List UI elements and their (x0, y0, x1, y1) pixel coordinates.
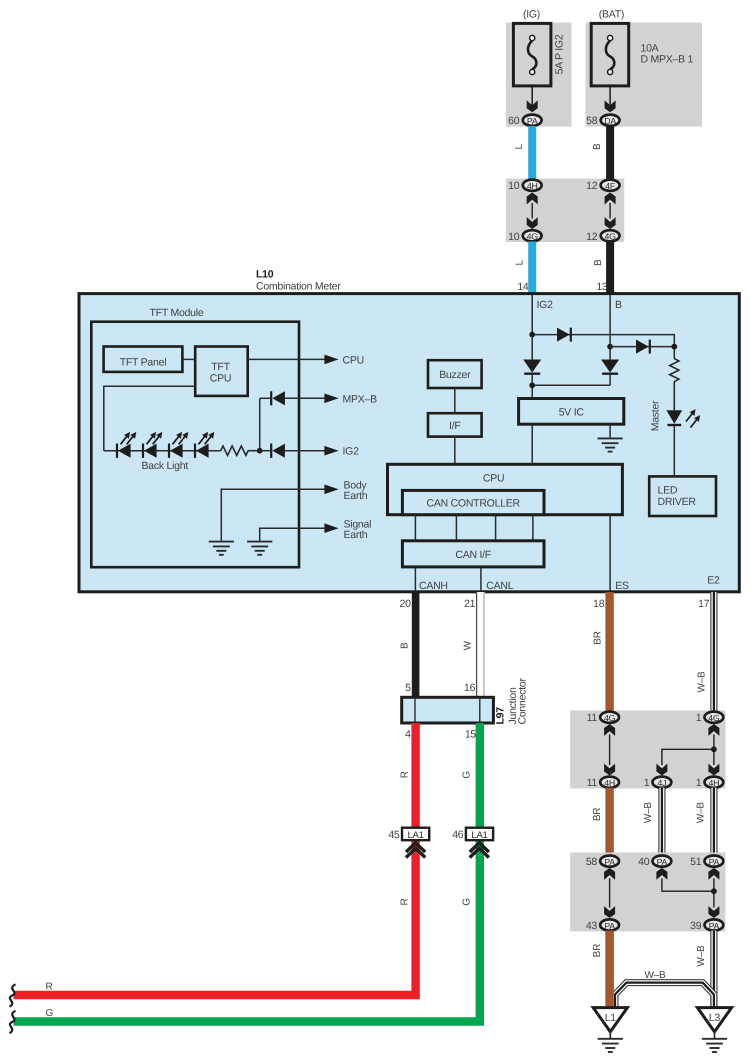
svg-text:4J: 4J (658, 778, 667, 788)
svg-text:B: B (592, 143, 603, 150)
svg-text:CPU: CPU (343, 355, 364, 367)
svg-text:CANL: CANL (486, 580, 513, 592)
svg-text:L: L (514, 143, 525, 149)
svg-text:46: 46 (452, 829, 464, 841)
svg-text:12: 12 (586, 231, 598, 243)
svg-text:TFT: TFT (211, 361, 230, 373)
svg-text:BR: BR (592, 808, 603, 821)
svg-text:4: 4 (405, 728, 411, 740)
svg-text:16: 16 (464, 682, 476, 694)
svg-text:G: G (46, 1008, 54, 1019)
svg-text:IG2: IG2 (537, 299, 554, 311)
svg-text:Connector: Connector (517, 678, 529, 725)
svg-text:W–B: W–B (643, 802, 654, 824)
svg-text:43: 43 (586, 920, 598, 932)
svg-text:10: 10 (508, 231, 520, 243)
svg-text:14: 14 (517, 281, 529, 293)
svg-text:11: 11 (587, 712, 598, 724)
svg-text:Buzzer: Buzzer (439, 369, 471, 381)
svg-text:60: 60 (508, 115, 520, 127)
svg-text:1: 1 (644, 777, 650, 789)
svg-text:TFT Module: TFT Module (150, 307, 204, 319)
svg-text:TFT Panel: TFT Panel (120, 357, 167, 369)
svg-text:21: 21 (464, 598, 476, 610)
svg-text:CAN CONTROLLER: CAN CONTROLLER (427, 498, 521, 510)
svg-text:B: B (593, 259, 604, 266)
svg-text:4H: 4H (709, 778, 720, 788)
svg-text:CPU: CPU (210, 373, 231, 385)
svg-text:L97: L97 (495, 707, 507, 725)
svg-text:Earth: Earth (344, 490, 368, 502)
svg-text:R: R (400, 771, 411, 778)
svg-text:39: 39 (690, 920, 702, 932)
svg-text:4H: 4H (604, 778, 615, 788)
svg-text:W–B: W–B (695, 802, 706, 824)
svg-text:40: 40 (638, 856, 650, 868)
svg-text:CPU: CPU (483, 473, 504, 485)
svg-text:PA: PA (709, 857, 720, 867)
svg-text:Back Light: Back Light (142, 460, 189, 472)
svg-text:51: 51 (690, 856, 702, 868)
svg-text:58: 58 (586, 856, 598, 868)
svg-text:4G: 4G (708, 713, 720, 723)
svg-text:13: 13 (596, 281, 608, 293)
svg-text:DRIVER: DRIVER (658, 496, 697, 508)
svg-text:D MPX–B 1: D MPX–B 1 (641, 54, 694, 66)
svg-text:DA: DA (604, 116, 616, 126)
svg-text:20: 20 (400, 598, 412, 610)
svg-text:4F: 4F (605, 181, 616, 191)
svg-text:LA1: LA1 (471, 830, 487, 841)
svg-text:LED: LED (658, 485, 678, 497)
svg-text:(BAT): (BAT) (599, 9, 624, 21)
svg-text:G: G (462, 771, 473, 779)
svg-text:L1: L1 (605, 1012, 617, 1024)
svg-text:CANH: CANH (419, 580, 448, 592)
svg-text:BR: BR (592, 944, 603, 957)
svg-text:4H: 4H (527, 181, 538, 191)
svg-text:W–B: W–B (645, 970, 667, 981)
svg-text:LA1: LA1 (408, 830, 424, 841)
svg-text:B: B (615, 299, 622, 311)
svg-text:4G: 4G (604, 713, 616, 723)
svg-text:MPX–B: MPX–B (343, 393, 378, 405)
svg-text:PA: PA (604, 921, 615, 931)
svg-text:R: R (400, 898, 411, 905)
svg-text:4G: 4G (527, 232, 539, 242)
svg-text:L: L (515, 259, 526, 265)
svg-text:12: 12 (586, 180, 598, 192)
svg-text:B: B (400, 642, 411, 649)
svg-text:W: W (463, 640, 474, 650)
svg-text:Earth: Earth (344, 529, 368, 541)
svg-text:E2: E2 (707, 575, 720, 587)
svg-text:18: 18 (593, 598, 605, 610)
svg-text:(IG): (IG) (523, 9, 540, 21)
svg-text:45: 45 (388, 829, 400, 841)
svg-text:15: 15 (465, 728, 477, 740)
svg-text:Master: Master (650, 400, 662, 431)
svg-text:5: 5 (405, 682, 411, 694)
svg-text:1: 1 (696, 777, 702, 789)
svg-text:PA: PA (709, 921, 720, 931)
svg-text:I/F: I/F (449, 420, 461, 432)
svg-text:R: R (46, 981, 53, 992)
svg-text:4G: 4G (604, 232, 616, 242)
svg-text:Combination Meter: Combination Meter (256, 281, 341, 293)
svg-text:5V IC: 5V IC (559, 407, 585, 419)
svg-text:PA: PA (657, 857, 668, 867)
svg-text:L3: L3 (709, 1012, 721, 1024)
svg-text:CAN I/F: CAN I/F (455, 549, 491, 561)
svg-text:10: 10 (508, 180, 520, 192)
svg-text:58: 58 (586, 115, 598, 127)
svg-text:L10: L10 (256, 269, 274, 281)
svg-text:W–B: W–B (696, 671, 707, 693)
svg-text:PA: PA (527, 116, 538, 126)
svg-text:IG2: IG2 (343, 446, 360, 458)
svg-text:G: G (462, 898, 473, 906)
svg-text:PA: PA (604, 857, 615, 867)
svg-text:1: 1 (696, 712, 702, 724)
svg-text:17: 17 (698, 598, 710, 610)
svg-text:ES: ES (615, 580, 629, 592)
svg-text:5A P IG2: 5A P IG2 (554, 34, 566, 74)
svg-text:BR: BR (593, 631, 604, 644)
svg-text:W–B: W–B (696, 945, 707, 967)
svg-text:11: 11 (587, 777, 598, 789)
